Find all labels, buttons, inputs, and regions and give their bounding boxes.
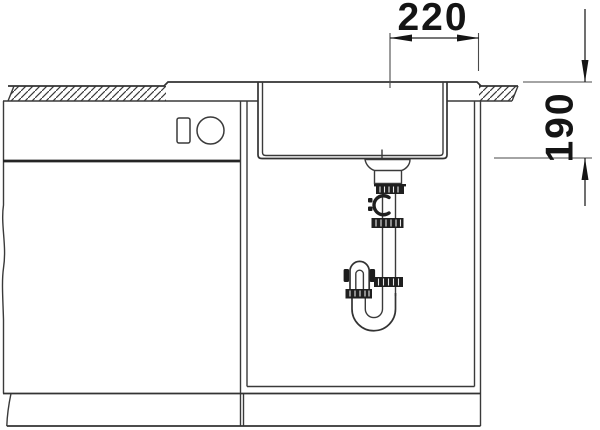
front-panel-circle-symbol (197, 117, 224, 144)
sink-installation-drawing: 220 190 (0, 0, 600, 430)
arrowhead-bottom (582, 158, 589, 180)
countertop-section-left (8, 86, 166, 101)
dimension-depth: 190 (494, 9, 592, 206)
bowl-outer-wall (258, 82, 447, 159)
drawing-canvas: 220 190 (0, 0, 600, 430)
dimension-width: 220 (390, 0, 479, 88)
arrowhead-top (582, 60, 589, 82)
cabinet-left-edge-break (2, 101, 4, 394)
base-cabinet-left (2, 101, 240, 394)
bowl-inner-wall (263, 82, 444, 156)
dimension-depth-label: 190 (539, 91, 582, 162)
overflow-elbow (368, 196, 389, 215)
drain-flange (365, 160, 410, 184)
cabinet-divider (241, 101, 248, 426)
trap-u-bend-inner (365, 296, 382, 318)
trap-u-bend-outer (352, 293, 396, 331)
trap-loop (344, 261, 376, 289)
countertop-hatch-left (8, 86, 166, 101)
sink-rim-top-line (164, 82, 481, 86)
dimension-width-label: 220 (397, 0, 468, 39)
compression-nut (372, 218, 404, 228)
drain-assembly (344, 160, 410, 331)
plinth-left-edge (7, 394, 11, 427)
trap-loop-nut-left (344, 269, 350, 282)
trap-nut-right (374, 277, 403, 287)
sink-bowl (258, 82, 447, 159)
front-panel-square-symbol (177, 118, 190, 143)
plinth (3, 394, 481, 427)
trap-nut-left (346, 289, 373, 299)
siphon-trap (344, 228, 403, 331)
countertop-section-right (447, 86, 518, 101)
strainer-locknut (374, 184, 406, 194)
sink-cabinet (247, 101, 481, 426)
